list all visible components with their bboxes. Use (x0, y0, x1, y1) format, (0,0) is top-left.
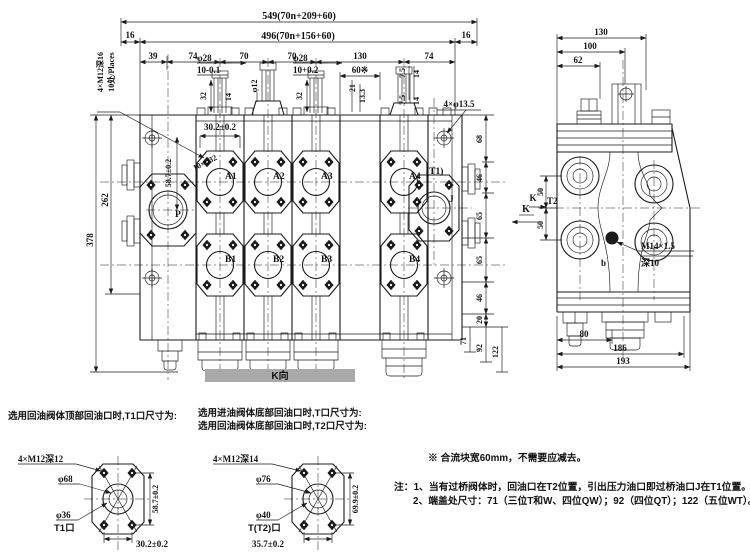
port-label-a1: A1 (225, 172, 237, 182)
dim-sv-62: 62 (574, 55, 584, 65)
relief-plug-left-2 (122, 216, 140, 246)
label-m14-depth: 深10 (641, 257, 660, 268)
dim-sv-50b: 50 (536, 221, 545, 229)
dim-14-b: 14 (412, 97, 421, 105)
dim-16-right: 16 (462, 30, 472, 40)
port-label-a3: A3 (321, 172, 333, 182)
dim-phi28-s3: φ28 (293, 53, 308, 63)
d1-inner-dia: φ36 (56, 510, 71, 520)
d1-port-name: T1口 (54, 523, 75, 534)
side-view: 130 100 62 50 50 T2 K M14×1.5 深10 b 80 1… (529, 27, 702, 371)
port-label-b3: B3 (321, 255, 332, 265)
sv-centerlines (538, 60, 702, 360)
dim-sv-130: 130 (594, 27, 608, 37)
dim-46a: 46 (475, 174, 484, 182)
label-sv-t2: T2 (547, 196, 558, 206)
note-star: ※ 合流块宽60mm，不需要应减去。 (428, 451, 586, 464)
label-m14: M14×1.5 (641, 241, 675, 251)
dim-549: 549(70n+209+60) (262, 11, 336, 22)
d1-outer-dia: φ68 (58, 474, 73, 484)
dim-496: 496(70n+156+60) (261, 31, 335, 42)
dim-13-3: 13.3 (358, 89, 367, 103)
dim-46b: 46 (475, 294, 484, 302)
dim-60-merge: 60※ (352, 65, 369, 75)
d1-horizontal-dim: 30.2±0.2 (136, 539, 168, 549)
dim-65a: 65 (475, 212, 484, 220)
mv-body (122, 108, 480, 376)
dim-10tol-s1: 10-0.1 (197, 65, 221, 75)
dim-39: 39 (149, 51, 159, 61)
port-label-j: J (449, 195, 454, 205)
dim-262: 262 (100, 193, 110, 207)
k-direction-label: K (522, 204, 530, 215)
d2-horizontal-dim: 35.7±0.2 (252, 539, 284, 549)
main-view: A1 A2 A3 A4 B1 B2 B3 B4 P (T1) J 549(70n… (85, 11, 540, 380)
relief-plug-right-2 (462, 218, 480, 248)
valve-engineering-drawing: A1 A2 A3 A4 B1 B2 B3 B4 P (T1) J 549(70n… (0, 0, 750, 553)
dim-122: 122 (491, 346, 500, 358)
label-4xM12-16: 4×M12深16 (95, 52, 105, 92)
note-2: 2、端盖处尺寸：71（三位T和W、四位QW）；92（四位QT）；122（五位WT… (413, 494, 750, 507)
dim-sv-193: 193 (616, 356, 630, 366)
dim-sv-100: 100 (583, 41, 597, 51)
detail-t2-flange: 4×M12深14 φ76 φ40 T(T2)口 69.9±0.2 35.7±0.… (213, 453, 360, 550)
dim-32-s1: 32 (199, 92, 208, 100)
dim-58-7: 58.7±0.2 (164, 159, 173, 187)
mounting-hole (434, 128, 454, 148)
label-10-places: 10处/Places (106, 52, 116, 92)
mounting-hole (142, 128, 162, 148)
d2-bolts-label: 4×M12深14 (213, 453, 259, 464)
dim-65b: 65 (475, 256, 484, 264)
k-bar-label: K向 (271, 369, 288, 382)
label-4xphi13-5: 4×φ13.5 (444, 99, 475, 109)
dim-378: 378 (85, 233, 95, 247)
d2-port-name: T(T2)口 (248, 523, 281, 534)
port-label-b2: B2 (273, 255, 284, 265)
caption-t-bottom: 选用进油阀体底部回油口时,T口尺寸为: (198, 407, 362, 419)
caption-t2-bottom: 选用回油阀体底部回油口时,T2口尺寸为: (198, 420, 367, 432)
dim-14-a: 14 (412, 70, 421, 78)
relief-plug-left-1 (122, 160, 140, 190)
dim-phi28-s1: φ28 (197, 53, 212, 63)
d2-inner-dia: φ40 (256, 510, 271, 520)
m14-port-dot (606, 232, 619, 245)
note-1: 注：1、当有过桥阀体时，回油口在T2位置，引出压力油口即过桥油口J在T1位置。 (394, 480, 750, 493)
caption-t1-top: 选用回油阀体顶部回油口时,T1口尺寸为: (8, 410, 177, 422)
mounting-hole (142, 268, 162, 288)
dim-30-2: 30.2±0.2 (204, 122, 236, 132)
dim-92: 92 (475, 344, 484, 352)
d1-vertical-dim: 58.7±0.2 (151, 485, 160, 513)
port-label-a2: A2 (273, 172, 285, 182)
label-sv-k: K (529, 193, 536, 203)
dim-20: 20 (475, 316, 484, 324)
port-label-b1: B1 (225, 255, 236, 265)
mv-dims-left: 378 262 (85, 115, 178, 372)
port-label-p: P (175, 210, 181, 220)
dim-70a: 70 (240, 51, 250, 61)
dim-10tol-s3: 10+0.2 (293, 65, 319, 75)
dim-71: 71 (459, 337, 468, 345)
sv-port-circle (561, 221, 599, 259)
dim-14-s2: 14 (224, 93, 233, 101)
dim-phi12: φ12 (250, 80, 259, 93)
port-label-a4: A4 (409, 172, 421, 182)
captions: 选用回油阀体顶部回油口时,T1口尺寸为: 选用进油阀体底部回油口时,T口尺寸为:… (8, 407, 367, 432)
mv-ports: A1 A2 A3 A4 B1 B2 B3 B4 P (T1) J (140, 151, 459, 296)
dim-21: 21 (348, 84, 357, 92)
k-view-bar: K向 (205, 369, 355, 382)
dim-16-left: 16 (126, 30, 136, 40)
port-label-b4: B4 (409, 255, 420, 265)
d2-outer-dia: φ76 (256, 474, 271, 484)
dim-7-5-a: 7.5 (398, 68, 407, 78)
sv-dims: 130 100 62 50 50 T2 K M14×1.5 深10 b 80 1… (529, 27, 694, 371)
mv-dims-right: 68 46 65 65 46 20 71 92 122 (459, 115, 508, 372)
dim-32-s3: 32 (295, 92, 304, 100)
dim-130: 130 (353, 51, 367, 61)
port-label-t1: (T1) (426, 166, 443, 177)
detail-t1-flange: 4×M12深12 φ68 φ36 T1口 58.7±0.2 30.2±0.2 (18, 453, 168, 550)
dim-sv-50a: 50 (536, 188, 545, 196)
sv-body (557, 84, 690, 350)
dim-sv-186: 186 (613, 343, 627, 353)
mounting-hole (434, 268, 454, 288)
label-b: b (601, 258, 606, 268)
dim-74b: 74 (425, 51, 435, 61)
dim-7-5-b: 7.5 (398, 95, 407, 105)
d2-vertical-dim: 69.9±0.2 (351, 485, 360, 513)
dim-68: 68 (475, 135, 484, 143)
dim-sv-80: 80 (580, 329, 590, 339)
d1-bolts-label: 4×M12深12 (18, 453, 64, 464)
notes: ※ 合流块宽60mm，不需要应减去。 注：1、当有过桥阀体时，回油口在T2位置，… (394, 451, 750, 507)
